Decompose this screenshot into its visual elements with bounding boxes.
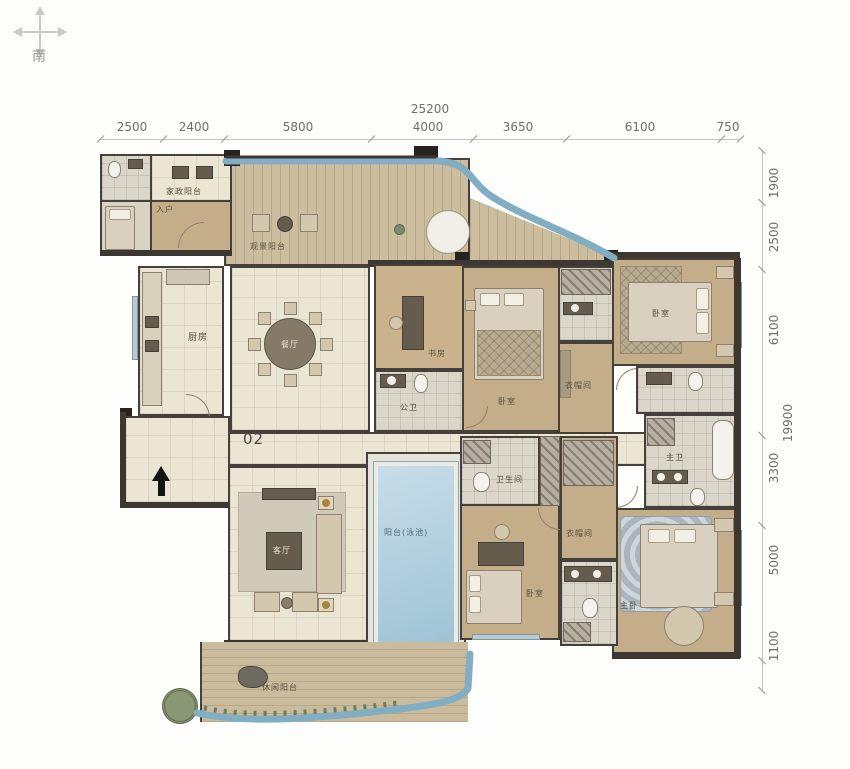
wall-segment	[734, 258, 741, 658]
floor-plan: 南 25200 2500 2400 5800 4000 3650 6100 75…	[0, 0, 850, 769]
water-edge-overlay	[0, 0, 850, 769]
top-water-edge	[226, 161, 614, 258]
